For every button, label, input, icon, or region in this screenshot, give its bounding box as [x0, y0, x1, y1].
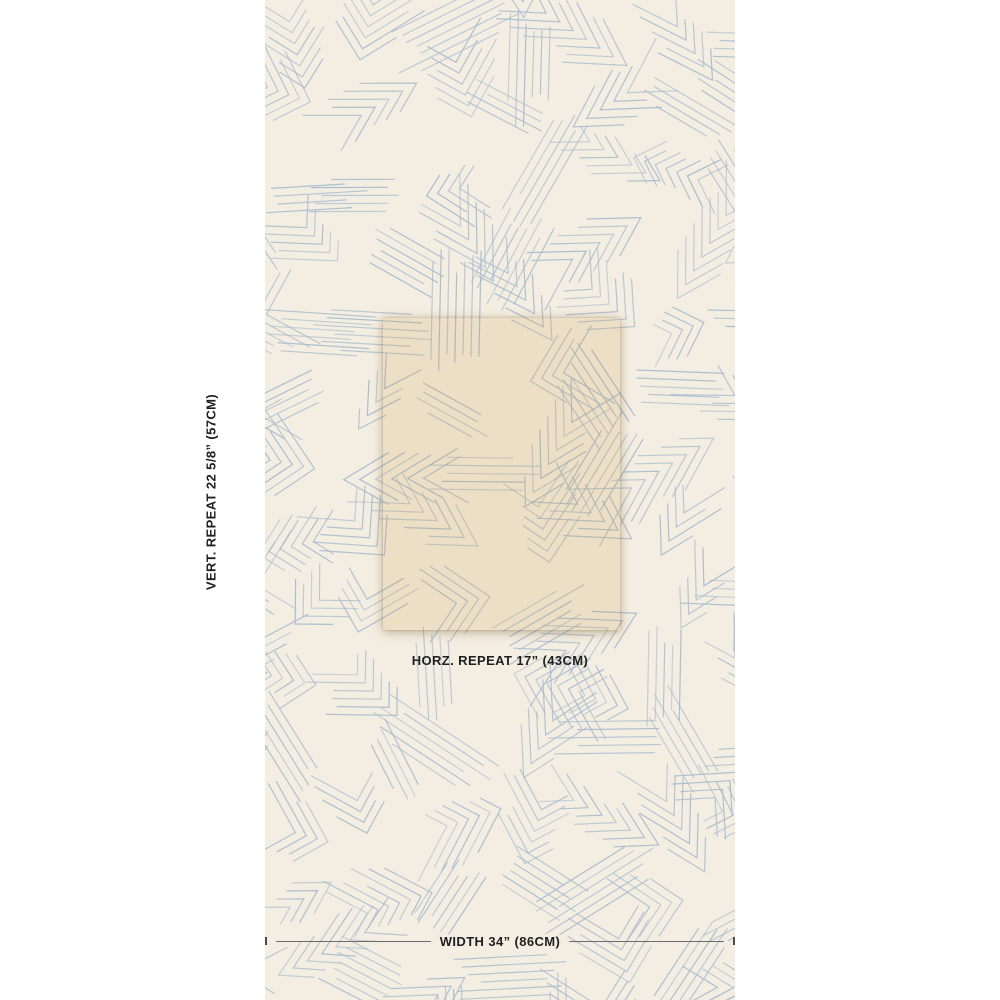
repeat-highlight-overlay: [383, 318, 620, 630]
width-measure: WIDTH 34” (86CM): [265, 934, 735, 948]
horizontal-repeat-label: HORZ. REPEAT 17” (43CM): [265, 653, 735, 668]
measure-line-right: [569, 941, 724, 942]
measure-line-left: [276, 941, 431, 942]
wallpaper-swatch: HORZ. REPEAT 17” (43CM) WIDTH 34” (86CM): [265, 0, 735, 1000]
measure-tick-left: [265, 937, 267, 945]
product-dimension-diagram: VERT. REPEAT 22 5/8” (57CM) HORZ. REPEAT…: [0, 0, 1000, 1000]
vertical-repeat-label: VERT. REPEAT 22 5/8” (57CM): [204, 394, 219, 590]
measure-tick-right: [733, 937, 735, 945]
width-label: WIDTH 34” (86CM): [440, 934, 561, 949]
